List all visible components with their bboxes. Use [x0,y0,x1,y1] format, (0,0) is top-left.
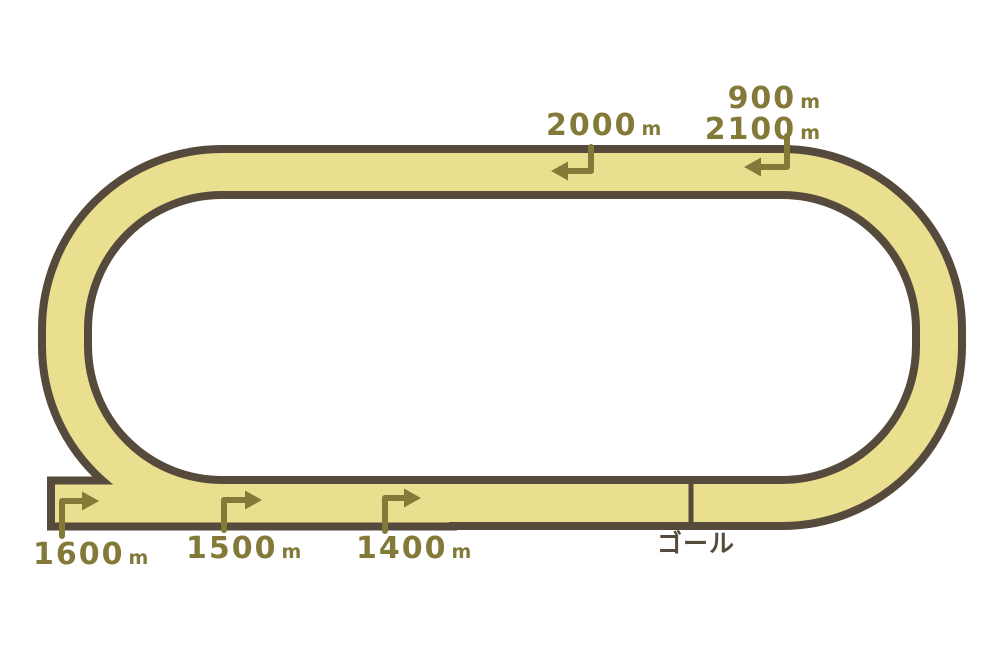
racecourse-track-canvas [0,0,1000,650]
marker-unit: m [800,91,820,113]
marker-unit: m [282,541,302,563]
track-surface-ring [65,172,939,503]
marker-unit: m [129,547,149,569]
marker-value: 1500 [186,531,278,566]
marker-unit: m [800,122,820,144]
marker-label-1600m: 1600m [33,540,148,570]
marker-value: 900 [728,81,797,116]
marker-label-2100m: 2100m [705,116,820,147]
marker-value: 2100 [705,112,797,147]
marker-value: 1600 [33,537,125,572]
track-outline [65,172,939,504]
marker-value: 2000 [546,108,638,143]
track-outline-ring [65,172,939,503]
racecourse-map: 2000m 900m 2100m 1600m 1500m 1400m ゴール [0,0,1000,650]
marker-unit: m [452,541,472,563]
track-surface [65,172,939,504]
marker-label-900m-2100m: 900m 2100m [705,85,820,147]
goal-label: ゴール [657,531,735,556]
marker-label-1400m: 1400m [356,534,471,564]
marker-unit: m [642,118,662,140]
marker-value: 1400 [356,531,448,566]
marker-label-1500m: 1500m [186,534,301,564]
marker-label-2000m: 2000m [546,111,661,141]
